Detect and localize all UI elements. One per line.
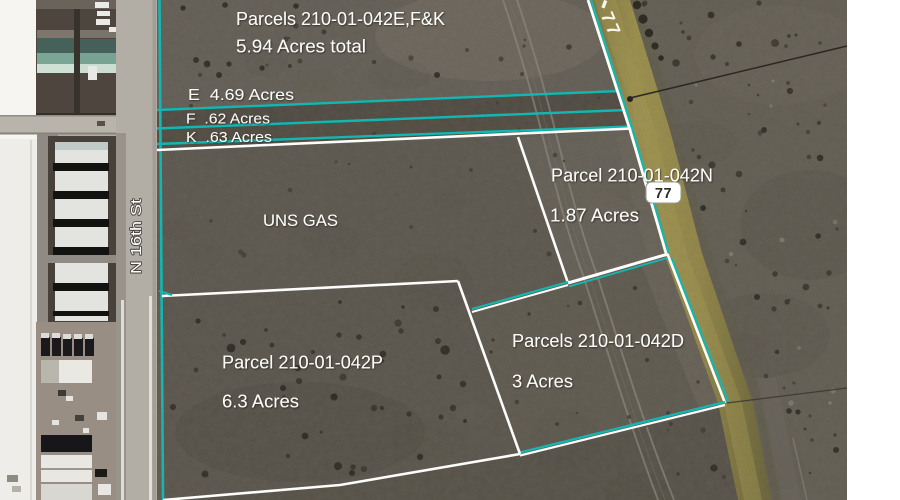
svg-text:UNS GAS: UNS GAS bbox=[263, 212, 338, 230]
svg-text:Parcel 210-01-042P: Parcel 210-01-042P bbox=[222, 353, 383, 373]
svg-text:E 4.69 Acres: E 4.69 Acres bbox=[188, 87, 294, 104]
svg-text:1.87 Acres: 1.87 Acres bbox=[550, 206, 639, 226]
svg-text:6.3 Acres: 6.3 Acres bbox=[222, 392, 299, 412]
svg-text:Parcels 210-01-042D: Parcels 210-01-042D bbox=[512, 331, 684, 351]
svg-text:K .63 Acres: K .63 Acres bbox=[186, 130, 272, 146]
svg-text:3 Acres: 3 Acres bbox=[512, 372, 573, 392]
svg-text:N 16th St: N 16th St bbox=[128, 198, 145, 274]
svg-text:Parcels 210-01-042E,F&K: Parcels 210-01-042E,F&K bbox=[236, 9, 445, 29]
svg-text:77: 77 bbox=[655, 186, 672, 202]
svg-text:5.94 Acres total: 5.94 Acres total bbox=[236, 37, 366, 57]
svg-text:Parcel 210-01-042N: Parcel 210-01-042N bbox=[551, 166, 713, 186]
svg-text:F .62 Acres: F .62 Acres bbox=[186, 112, 270, 128]
